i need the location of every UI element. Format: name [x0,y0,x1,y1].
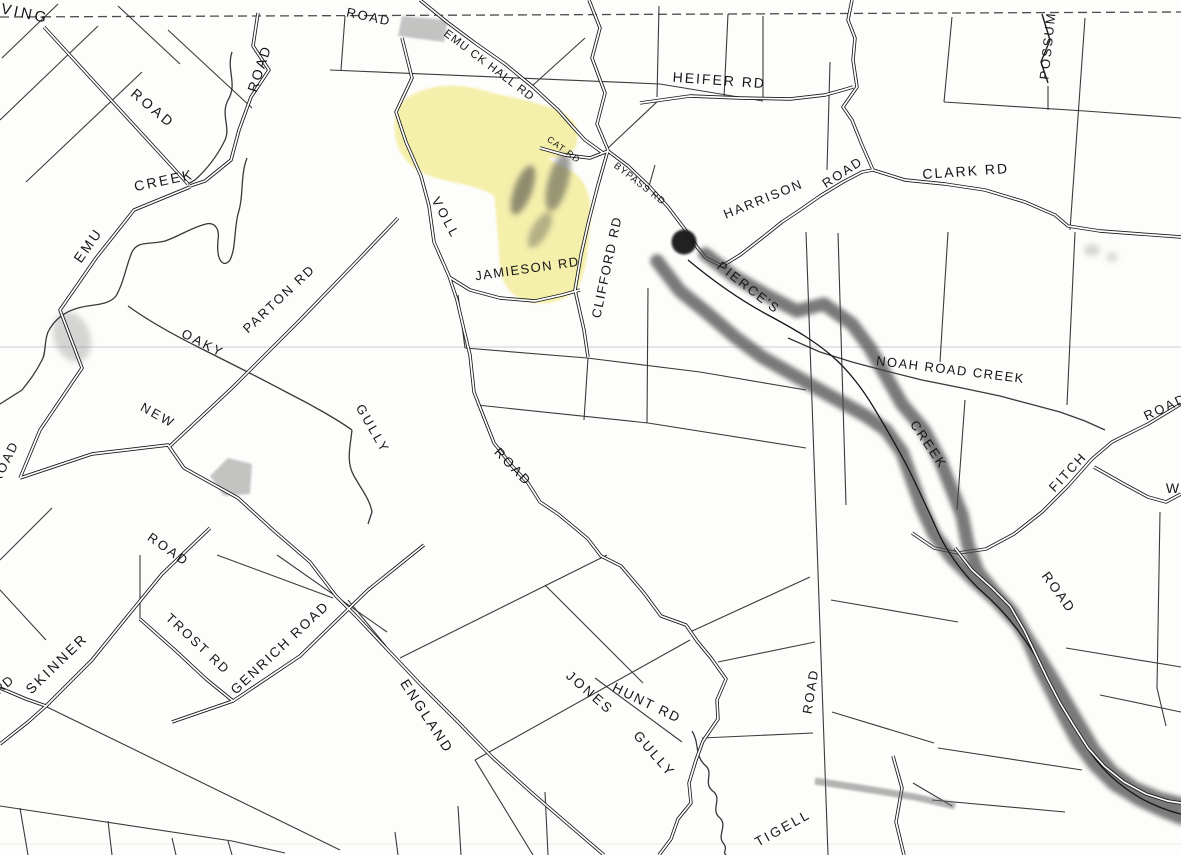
scanned-parcel-map: IRVINGROADROADROADEMU CK HALL RDHEIFER R… [0,0,1181,855]
map-label-w-right-edge: W [1166,480,1180,496]
map-paper [0,0,1181,855]
map-canvas: IRVINGROADROADROADEMU CK HALL RDHEIFER R… [0,0,1181,855]
black-marker-dot [672,230,697,255]
